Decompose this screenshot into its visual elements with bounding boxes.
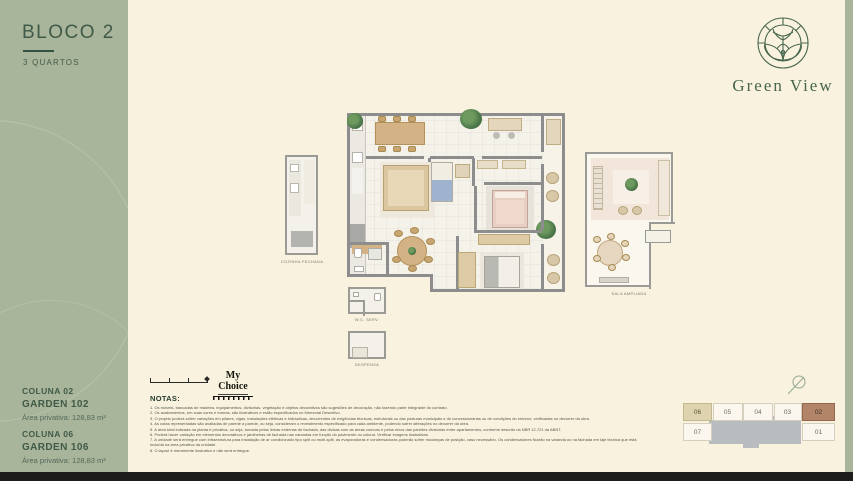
block-title: BLOCO 2 [22,22,115,44]
sala-ampliada-label: SALA AMPLIADA [585,291,673,296]
desk-chair [508,132,515,139]
partner-tagline-rule [218,394,248,395]
keyplan-unit-02: 02 [802,403,835,421]
brand-logo: Green View [723,14,843,96]
side-cabinet [546,119,561,145]
stove [290,183,299,193]
wall-segment [482,156,542,159]
dining-chair [378,146,386,152]
chair [426,238,435,245]
unit-garden: GARDEN 106 [22,442,122,453]
unit-info-coluna-02: COLUNA 02 GARDEN 102 Área privativa: 128… [22,386,122,422]
bed-blanket [496,200,524,224]
wall-segment [366,156,424,159]
sala-ampliada-plan [585,152,673,287]
bottom-bar [0,472,853,481]
bed-pillows [495,192,525,198]
wardrobe [502,160,526,169]
block-subtitle: 3 QUARTOS [23,58,80,67]
plant [460,109,482,129]
dining-chair [393,146,401,152]
master-wardrobe [478,234,530,245]
dining-table [375,122,425,145]
pantry-shelf [352,347,368,358]
unit-area: Área privativa: 128,83 m² [22,413,122,422]
kitchen-counter [352,168,363,194]
office-desk [488,118,522,131]
chair [622,254,630,261]
brand-name: Green View [723,76,843,96]
pouf [618,206,628,215]
wall-segment [363,300,365,316]
toilet [374,293,381,301]
single-bed [431,162,453,202]
shelving [593,166,603,210]
chair [408,265,417,272]
sofa [658,160,670,216]
wc-serv-plan [348,287,386,314]
keyplan-unit-04: 04 [743,403,773,421]
sofa-cushions [388,170,424,206]
desk [455,164,470,178]
chair [607,233,615,240]
wardrobe [458,252,476,288]
keyplan: 06 05 04 03 02 07 01 [683,376,835,452]
ruler-icon [213,396,253,400]
wall-segment [541,164,544,230]
keyplan-unit-07: 07 [683,423,712,441]
pouf [632,206,642,215]
wc-serv-label: W.C. SERV. [340,317,394,322]
chair [621,240,629,247]
wardrobe [477,160,498,169]
unit-coluna: COLUNA 06 [22,429,122,439]
unit-garden: GARDEN 102 [22,399,122,410]
fridge [291,231,313,247]
tv-rack [599,277,629,283]
notes-heading: NOTAS: [150,394,180,403]
chair [608,264,616,271]
dining-chair [408,116,416,122]
floor-plan-main [347,113,565,292]
dining-chair [393,116,401,122]
sink [290,164,299,172]
keyplan-unit-01: 01 [802,423,835,441]
graphic-scale-bar [150,377,208,383]
wall-segment [541,116,544,152]
keyplan-building-tab [743,442,759,448]
partner-logo: My Choice [210,370,256,400]
lounge-chair [547,272,560,284]
cozinha-fechada-plan [285,155,318,255]
notes-list: 1. Os móveis, bancadas de madeira, equip… [150,406,650,454]
sidebar: BLOCO 2 3 QUARTOS COLUNA 02 GARDEN 102 Á… [0,0,128,472]
table-plant [408,247,416,255]
right-edge-strip [845,0,853,472]
double-bed-second [484,256,520,288]
wall-segment [430,156,474,159]
north-compass-icon [786,374,808,396]
keyplan-building-mass [709,420,801,444]
bathroom-sink [353,292,359,297]
note-item: 8. O layout é meramente ilustrativo e nã… [150,449,650,454]
lounge-chair [546,190,559,202]
green-view-emblem-icon [754,14,812,72]
bathroom-sink [354,266,364,272]
wall-segment [350,242,386,245]
chair [424,256,433,263]
chair [392,256,401,263]
chair [593,236,601,243]
keyplan-unit-05: 05 [713,403,743,421]
dining-chair [378,116,386,122]
unit-area: Área privativa: 128,83 m² [22,456,122,465]
unit-coluna: COLUNA 02 [22,386,122,396]
chair [394,230,403,237]
dining-chair [408,146,416,152]
wall-segment [474,230,542,233]
kitchen-cabinet [304,160,315,204]
keyplan-unit-03: 03 [774,403,802,421]
title-divider [23,50,54,52]
shower [368,248,382,260]
wall-segment [541,244,544,289]
unit-info-coluna-06: COLUNA 06 GARDEN 106 Área privativa: 128… [22,429,122,465]
plant [625,178,638,191]
page: BLOCO 2 3 QUARTOS COLUNA 02 GARDEN 102 Á… [0,0,853,481]
chair [593,255,601,262]
cozinha-fechada-label: COZINHA FECHADA [262,259,342,264]
keyplan-unit-06: 06 [683,403,712,421]
wall-segment [474,186,477,231]
desk-chair [493,132,500,139]
lounge-chair [546,172,559,184]
lounge-chair [547,254,560,266]
plant [347,113,363,129]
wall-segment [350,300,363,302]
despensa-label: DESPENSA [340,362,394,367]
wall-segment [472,158,475,186]
wall-segment [484,182,542,185]
attached-cabinet [645,230,671,243]
chair [410,227,419,234]
stove [352,152,363,163]
round-table [597,240,623,266]
toilet [354,248,362,258]
note-item: 7. A unidade será entregue com infraestr… [150,438,650,448]
despensa-plan [348,331,386,359]
partner-name: My Choice [210,370,256,392]
